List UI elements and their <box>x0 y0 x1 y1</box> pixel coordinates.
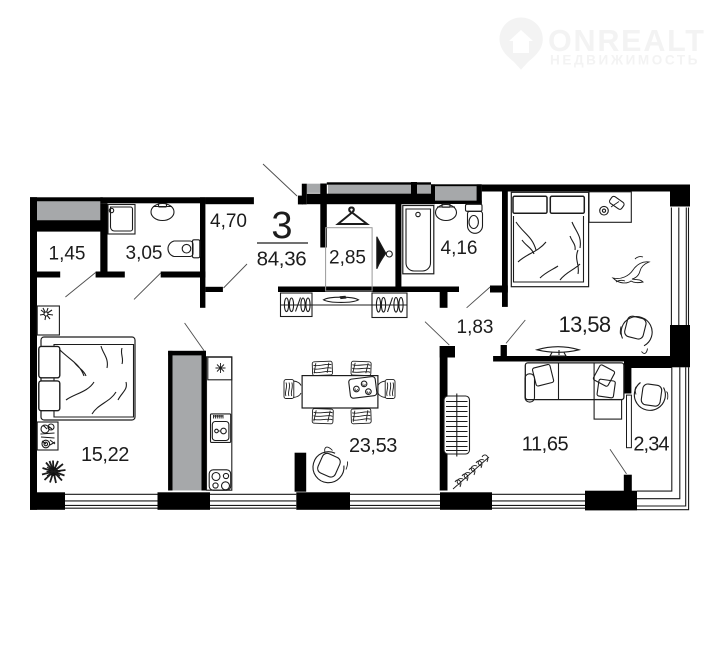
svg-text:13,58: 13,58 <box>558 312 610 337</box>
svg-text:84,36: 84,36 <box>257 248 307 271</box>
svg-text:1,45: 1,45 <box>49 244 86 265</box>
svg-text:4,16: 4,16 <box>441 238 478 259</box>
svg-text:3: 3 <box>271 205 292 247</box>
svg-text:23,53: 23,53 <box>349 435 397 457</box>
svg-text:11,65: 11,65 <box>522 434 569 456</box>
svg-text:4,70: 4,70 <box>210 211 247 232</box>
svg-text:1,83: 1,83 <box>457 317 494 338</box>
svg-text:15,22: 15,22 <box>81 444 129 466</box>
svg-text:3,05: 3,05 <box>126 243 163 264</box>
svg-text:2,85: 2,85 <box>329 248 366 269</box>
svg-text:2,34: 2,34 <box>633 434 669 456</box>
svg-text:НЕДВИЖИМОСТЬ: НЕДВИЖИМОСТЬ <box>550 53 700 68</box>
